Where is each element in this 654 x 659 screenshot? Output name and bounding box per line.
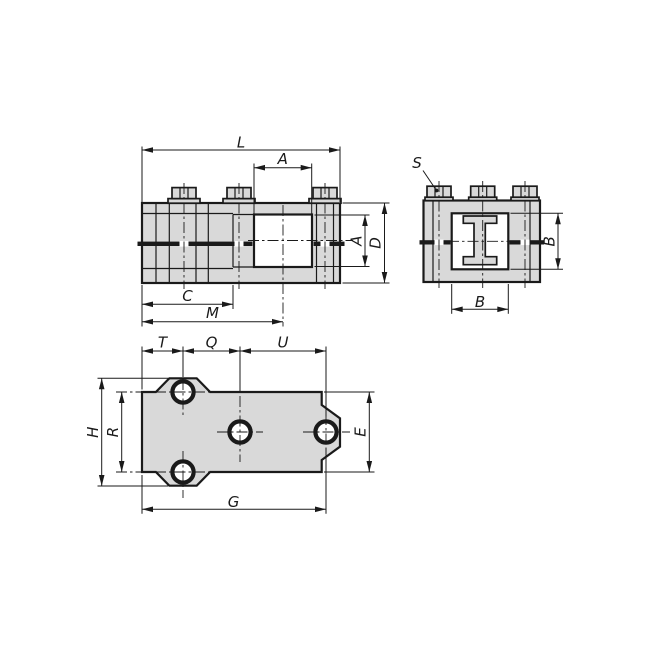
dim-M-label: M: [206, 304, 219, 322]
clamp-bolts-side: [425, 186, 539, 200]
dim-T-label: T: [158, 334, 169, 352]
dim-C-label: C: [182, 287, 193, 305]
dim-H-label: H: [84, 427, 102, 438]
dim-S-label: S: [412, 154, 422, 172]
dim-G-label: G: [228, 493, 240, 511]
dim-A-width-label: A: [277, 150, 288, 168]
dim-B-height-label: B: [541, 236, 559, 246]
dim-U-label: U: [278, 334, 289, 352]
front-view: L A A D C M: [138, 134, 390, 327]
technical-drawing: L A A D C M: [0, 0, 654, 654]
dim-Q-label: Q: [206, 334, 218, 352]
dim-L-label: L: [237, 134, 245, 152]
side-view: S B B: [412, 154, 563, 314]
leader-dot: [435, 189, 439, 193]
dim-R-label: R: [104, 427, 122, 437]
dim-A-height-label: A: [348, 236, 366, 247]
dim-B-width-label: B: [475, 293, 485, 311]
plan-view: T Q U H R E G: [84, 334, 374, 514]
dim-E-label: E: [352, 427, 370, 437]
drawing-canvas: L A A D C M: [0, 0, 654, 654]
dim-D-label: D: [367, 237, 385, 249]
